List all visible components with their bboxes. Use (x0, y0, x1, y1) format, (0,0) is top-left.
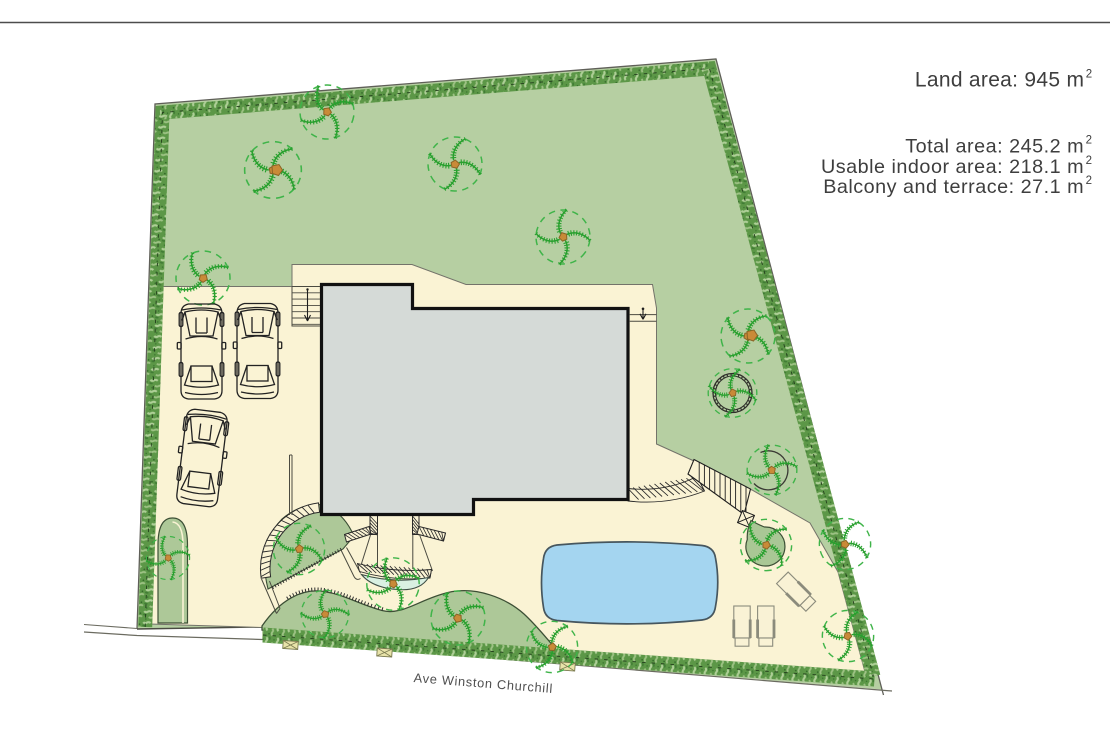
svg-text:Balcony and terrace: 27.1 m2: Balcony and terrace: 27.1 m2 (823, 175, 1092, 198)
svg-text:Land area: 945 m2: Land area: 945 m2 (915, 69, 1093, 92)
svg-text:Total area: 245.2 m2: Total area: 245.2 m2 (905, 135, 1092, 158)
svg-text:Usable indoor area: 218.1 m2: Usable indoor area: 218.1 m2 (821, 155, 1093, 178)
